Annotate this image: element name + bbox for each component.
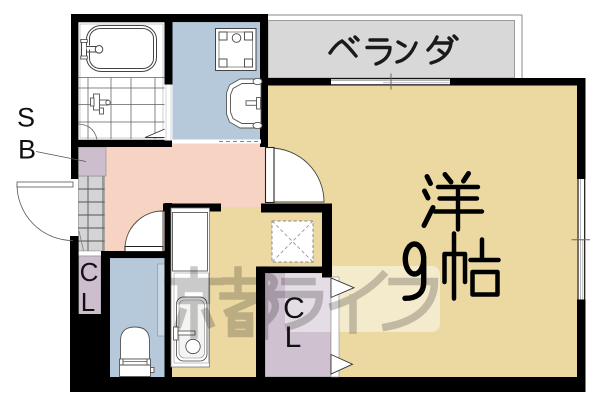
svg-text:C: C (80, 257, 99, 287)
svg-text:L: L (81, 287, 95, 317)
svg-text:B: B (18, 135, 36, 165)
svg-text:S: S (17, 103, 35, 133)
